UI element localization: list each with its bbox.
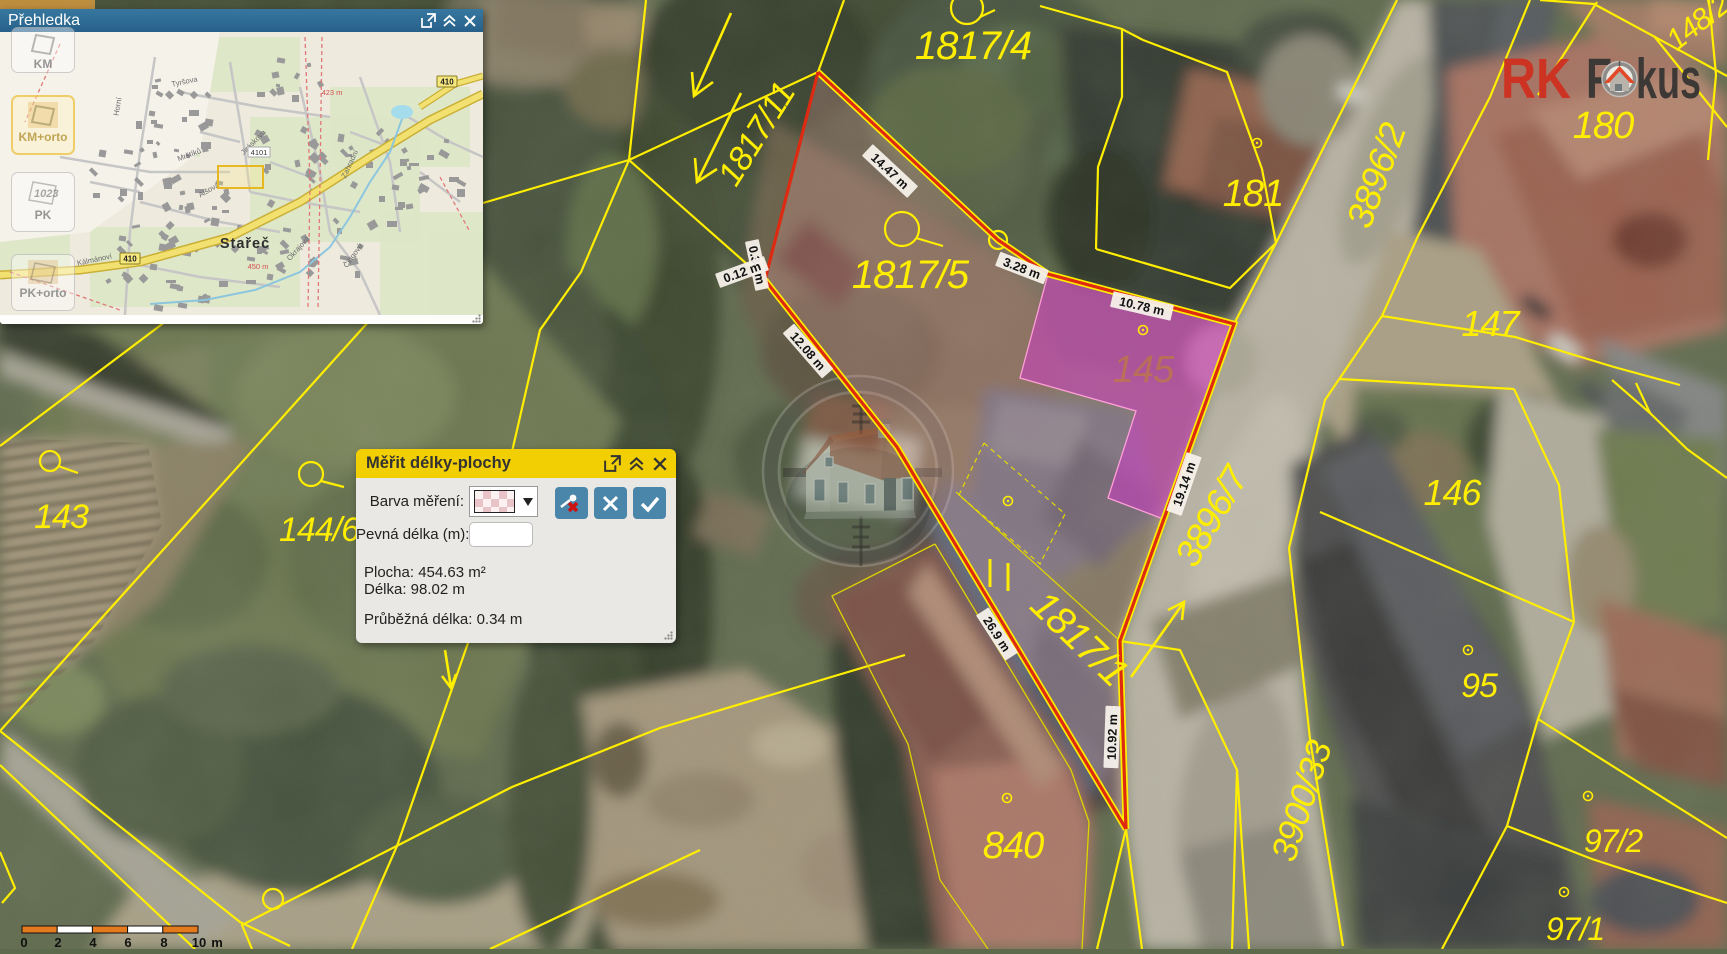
svg-text:95: 95 — [1461, 667, 1498, 705]
svg-text:146: 146 — [1423, 472, 1482, 513]
svg-text:410: 410 — [440, 78, 454, 87]
svg-text:450 m: 450 m — [248, 262, 269, 271]
svg-text:97/1: 97/1 — [1546, 911, 1604, 947]
svg-text:10.92 m: 10.92 m — [1105, 714, 1121, 760]
svg-text:840: 840 — [983, 825, 1044, 867]
svg-text:2: 2 — [54, 935, 61, 949]
svg-text:RK: RK — [1501, 47, 1571, 111]
svg-text:4101: 4101 — [251, 148, 268, 157]
svg-text:1023: 1023 — [34, 188, 58, 200]
svg-text:144/6: 144/6 — [279, 511, 360, 549]
svg-text:97/2: 97/2 — [1584, 823, 1643, 859]
svg-text:145: 145 — [1113, 349, 1175, 391]
svg-text:m: m — [211, 935, 223, 949]
svg-text:Stařeč: Stařeč — [220, 236, 270, 252]
svg-text:143: 143 — [34, 498, 89, 536]
svg-text:6: 6 — [124, 935, 131, 949]
svg-text:423 m: 423 m — [322, 88, 343, 97]
svg-text:1817/4: 1817/4 — [915, 24, 1031, 68]
svg-text:180: 180 — [1573, 105, 1634, 147]
svg-text:1817/5: 1817/5 — [852, 253, 970, 297]
svg-text:10: 10 — [192, 935, 206, 949]
svg-text:181: 181 — [1223, 173, 1283, 215]
svg-text:410: 410 — [123, 255, 137, 264]
svg-text:8: 8 — [160, 935, 167, 949]
svg-text:0: 0 — [20, 935, 27, 949]
svg-text:147: 147 — [1461, 303, 1521, 344]
svg-text:kus: kus — [1636, 47, 1701, 111]
svg-text:4: 4 — [89, 935, 97, 949]
